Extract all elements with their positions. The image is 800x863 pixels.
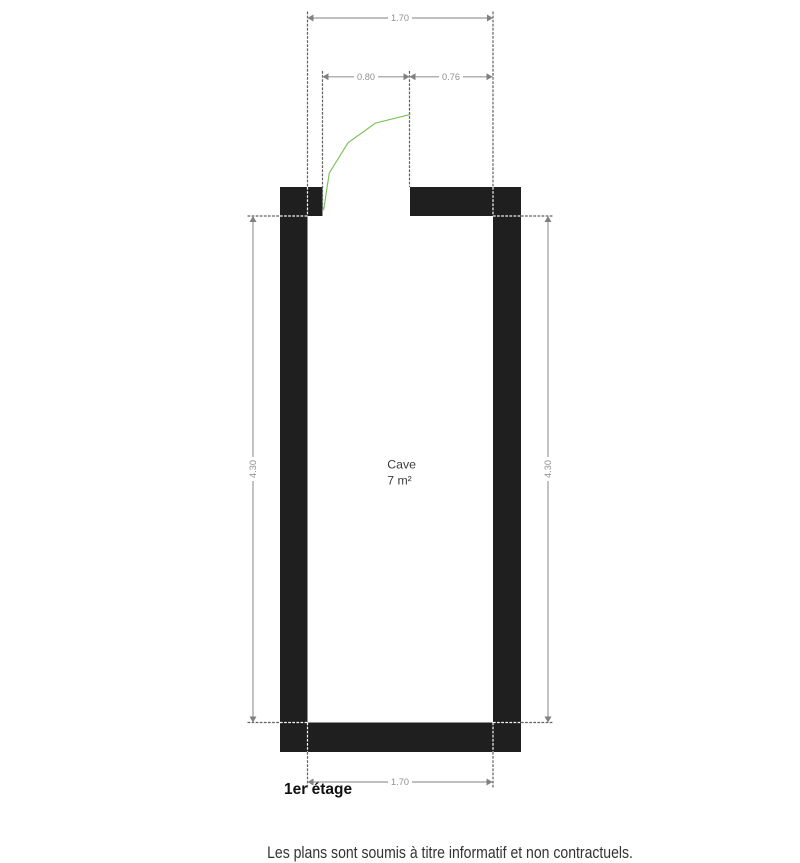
svg-text:4.30: 4.30 <box>248 460 258 478</box>
svg-text:1.70: 1.70 <box>391 777 409 787</box>
svg-text:1.70: 1.70 <box>391 13 409 23</box>
svg-text:0.80: 0.80 <box>357 72 375 82</box>
svg-text:4.30: 4.30 <box>543 460 553 478</box>
svg-text:7 m²: 7 m² <box>387 473 412 487</box>
svg-text:Les plans sont soumis à titre: Les plans sont soumis à titre informatif… <box>267 844 633 862</box>
svg-text:Cave: Cave <box>387 458 416 472</box>
svg-text:1er étage: 1er étage <box>284 781 352 798</box>
svg-text:0.76: 0.76 <box>442 72 460 82</box>
